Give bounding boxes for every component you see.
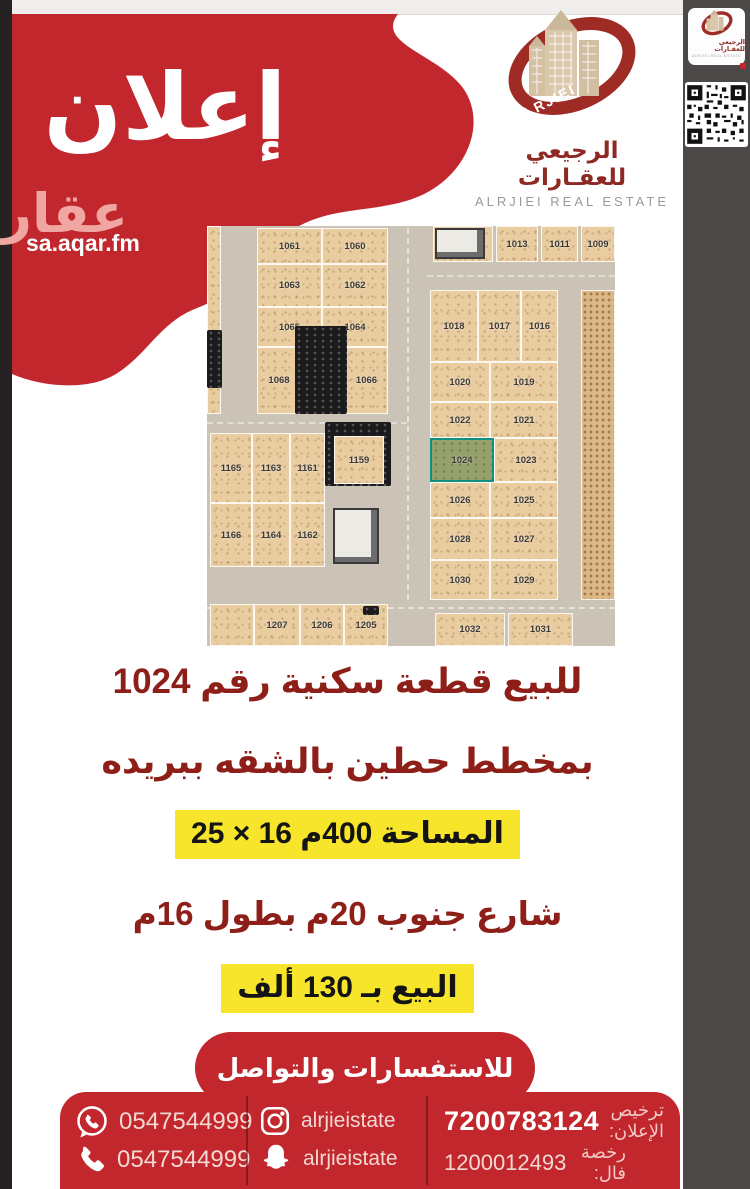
map-plot: 1060 xyxy=(322,228,388,264)
map-plot: 1164 xyxy=(252,503,290,567)
real-estate-ad-poster: إعلان عقار sa.aqar.fm ALRJIEI الرجيعي لل… xyxy=(0,0,750,1189)
instagram-icon xyxy=(258,1104,292,1138)
map-plot: 1017 xyxy=(478,290,521,362)
instagram-handle[interactable]: alrjieistate xyxy=(301,1109,396,1133)
map-plot: 1161 xyxy=(290,433,325,503)
map-plot: 1027 xyxy=(490,518,558,560)
sidebar-logo-name-arabic: الرجيعي للعقـارات xyxy=(688,40,745,53)
map-plot: 1062 xyxy=(322,264,388,307)
map-plot: 1163 xyxy=(252,433,290,503)
snapchat-handle[interactable]: alrjieistate xyxy=(303,1147,398,1171)
snapchat-icon xyxy=(258,1141,294,1177)
map-plot: 1028 xyxy=(430,518,490,560)
logo-card-notch xyxy=(740,63,746,69)
map-plot: 1018 xyxy=(430,290,478,362)
aqar-site-url: sa.aqar.fm xyxy=(26,230,140,257)
road-marking xyxy=(407,228,409,600)
map-plot: 1066 xyxy=(345,347,388,414)
map-plot xyxy=(581,290,615,600)
detail-line-area: المساحة 400م 16 × 25 xyxy=(12,810,683,859)
map-plot: 1206 xyxy=(300,604,344,646)
fal-license-number: 1200012493 xyxy=(444,1150,566,1176)
map-plot-highlighted: 1024 xyxy=(430,438,494,482)
phone-column: 0547544999 0547544999 xyxy=(60,1092,246,1189)
map-plot: 1011 xyxy=(541,226,578,262)
sidebar-logo-icon xyxy=(694,8,740,40)
company-logo: ALRJIEI الرجيعي للعقـارات ALRJIEI REAL E… xyxy=(472,8,672,209)
map-plot: 1009 xyxy=(581,226,615,262)
ad-license-row: ترخيص الإعلان: 7200783124 xyxy=(444,1100,664,1142)
map-plot: 1022 xyxy=(430,402,490,438)
map-plot: 1019 xyxy=(490,362,558,402)
contact-heading: للاستفسارات والتواصل xyxy=(217,1053,514,1084)
ad-license-label: ترخيص الإعلان: xyxy=(607,1100,664,1142)
map-plot: 1030 xyxy=(430,560,490,600)
qr-code[interactable] xyxy=(685,82,748,147)
sidebar-logo-card: الرجيعي للعقـارات ALRJIEI REAL ESTATE xyxy=(688,8,745,65)
map-plot: 1159 xyxy=(334,436,384,484)
phone-icon xyxy=(74,1143,108,1177)
building-dark xyxy=(363,606,379,615)
road-marking xyxy=(427,275,615,277)
detail-line-district: بمخطط حطين بالشقه ببريده xyxy=(12,742,683,782)
instagram-row[interactable]: alrjieistate xyxy=(258,1104,426,1138)
social-column: alrjieistate alrjieistate xyxy=(248,1092,426,1189)
building-light xyxy=(435,228,485,259)
map-plot: 1166 xyxy=(210,503,252,567)
map-plot: 1061 xyxy=(257,228,322,264)
detail-line-price: البيع بـ 130 ألف xyxy=(12,964,683,1013)
map-plot: 1029 xyxy=(490,560,558,600)
whatsapp-icon xyxy=(74,1104,110,1140)
map-plot: 1021 xyxy=(490,402,558,438)
phone-number[interactable]: 0547544999 xyxy=(117,1146,250,1174)
fal-license-row: رخصة فال: 1200012493 xyxy=(444,1142,664,1184)
map-plot: 1013 xyxy=(496,226,538,262)
map-plot: 1016 xyxy=(521,290,558,362)
map-plot: 1026 xyxy=(430,482,490,518)
phone-row[interactable]: 0547544999 xyxy=(74,1143,246,1177)
map-plot: 1032 xyxy=(435,613,505,646)
ad-license-number: 7200783124 xyxy=(444,1106,599,1137)
snapchat-row[interactable]: alrjieistate xyxy=(258,1141,426,1177)
announcement-title: إعلان xyxy=(30,58,300,159)
map-plot: 1165 xyxy=(210,433,252,503)
map-plot: 1023 xyxy=(494,438,558,482)
company-name-arabic: الرجيعي للعقـارات xyxy=(472,137,672,191)
satellite-plot-map: 1061106010631062106510641068106610151013… xyxy=(207,226,615,646)
map-plot: 1025 xyxy=(490,482,558,518)
fal-license-label: رخصة فال: xyxy=(574,1142,626,1184)
contact-bar: 0547544999 0547544999 alrjieistate xyxy=(60,1092,680,1189)
building-light xyxy=(333,508,379,564)
map-plot: 1207 xyxy=(254,604,300,646)
map-plot xyxy=(210,604,254,646)
map-plot: 1162 xyxy=(290,503,325,567)
company-logo-icon: ALRJIEI xyxy=(477,8,667,130)
license-column: ترخيص الإعلان: 7200783124 رخصة فال: 1200… xyxy=(428,1092,680,1189)
whatsapp-number[interactable]: 0547544999 xyxy=(119,1108,252,1136)
building-dark xyxy=(207,330,222,388)
sidebar-logo-name-english: ALRJIEI REAL ESTATE xyxy=(692,53,742,59)
map-plot: 1020 xyxy=(430,362,490,402)
price-highlight: البيع بـ 130 ألف xyxy=(221,964,473,1013)
map-plot: 1031 xyxy=(508,613,573,646)
company-name-english: ALRJIEI REAL ESTATE xyxy=(472,194,672,209)
building-dark xyxy=(295,326,347,414)
whatsapp-row[interactable]: 0547544999 xyxy=(74,1104,246,1140)
area-highlight: المساحة 400م 16 × 25 xyxy=(175,810,520,859)
detail-line-plot: للبيع قطعة سكنية رقم 1024 xyxy=(12,662,683,702)
detail-line-street: شارع جنوب 20م بطول 16م xyxy=(12,894,683,933)
map-plot: 1063 xyxy=(257,264,322,307)
info-sidebar: الرجيعي للعقـارات ALRJIEI REAL ESTATE xyxy=(683,0,750,1189)
